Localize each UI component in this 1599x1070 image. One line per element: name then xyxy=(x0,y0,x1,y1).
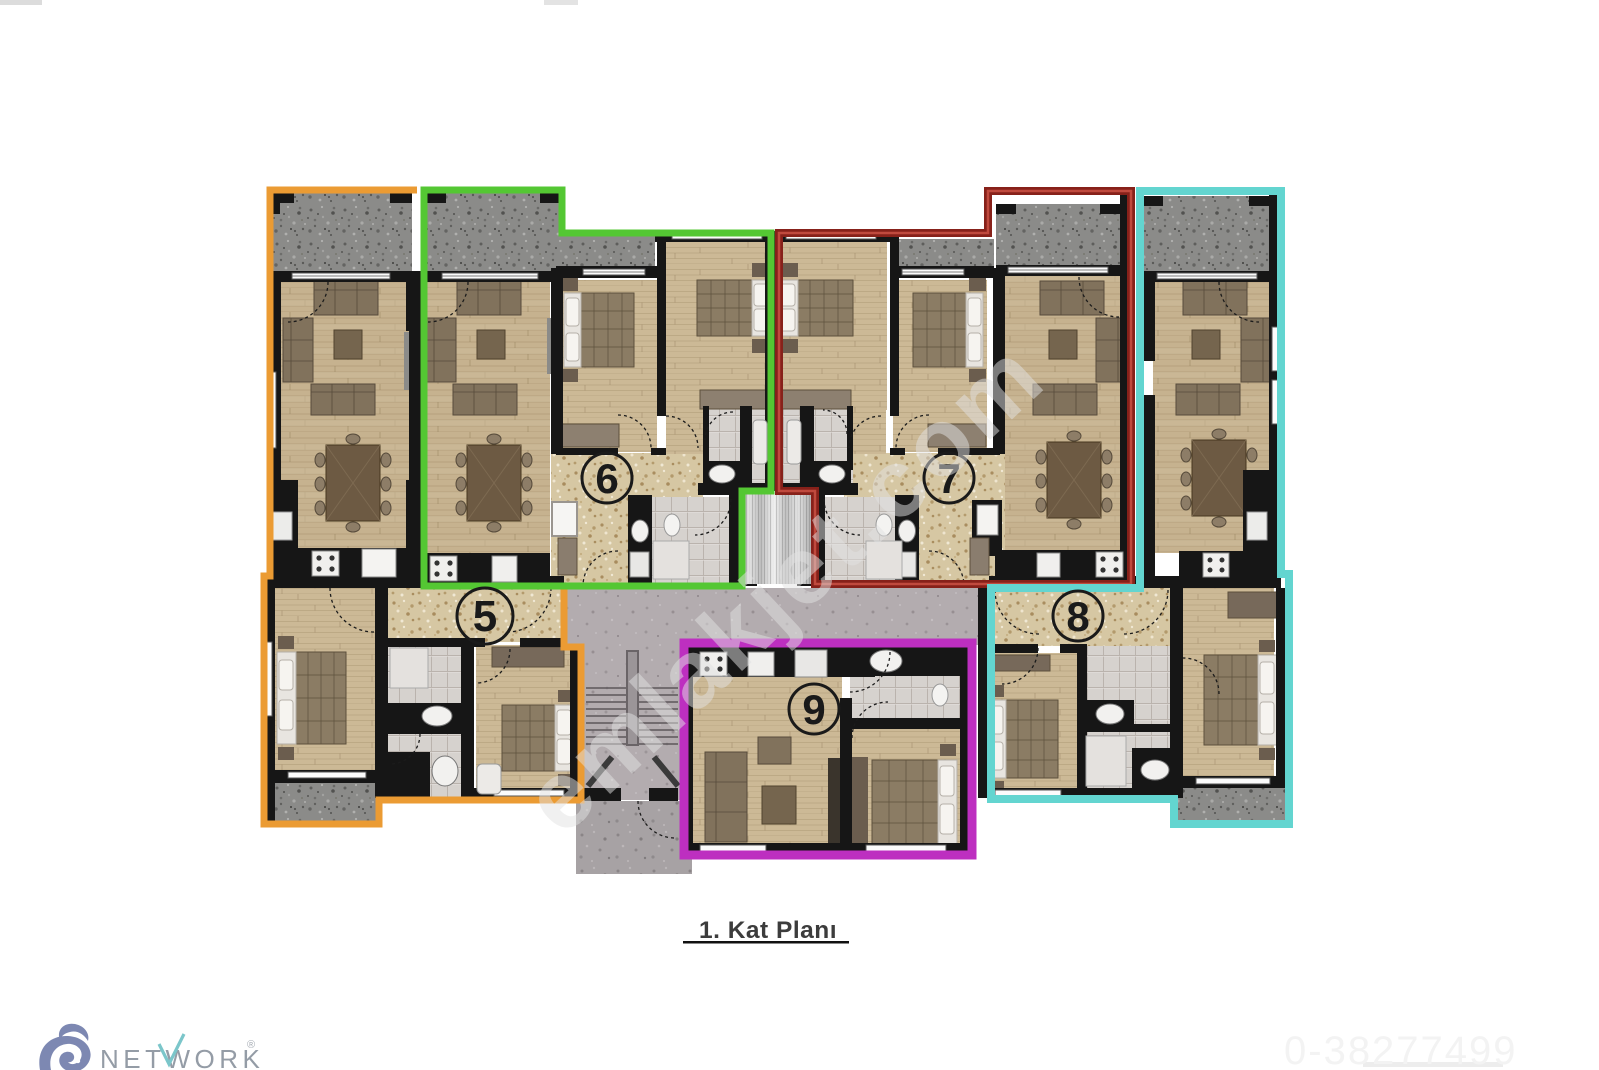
svg-text:5: 5 xyxy=(473,592,497,641)
svg-text:0-38277499: 0-38277499 xyxy=(1284,1029,1518,1070)
svg-text:9: 9 xyxy=(802,686,825,733)
svg-text:®: ® xyxy=(247,1039,255,1051)
svg-text:NETWORK: NETWORK xyxy=(100,1044,264,1070)
svg-text:6: 6 xyxy=(595,455,618,502)
svg-text:8: 8 xyxy=(1066,593,1089,640)
svg-text:1. Kat Planı: 1. Kat Planı xyxy=(699,917,837,944)
